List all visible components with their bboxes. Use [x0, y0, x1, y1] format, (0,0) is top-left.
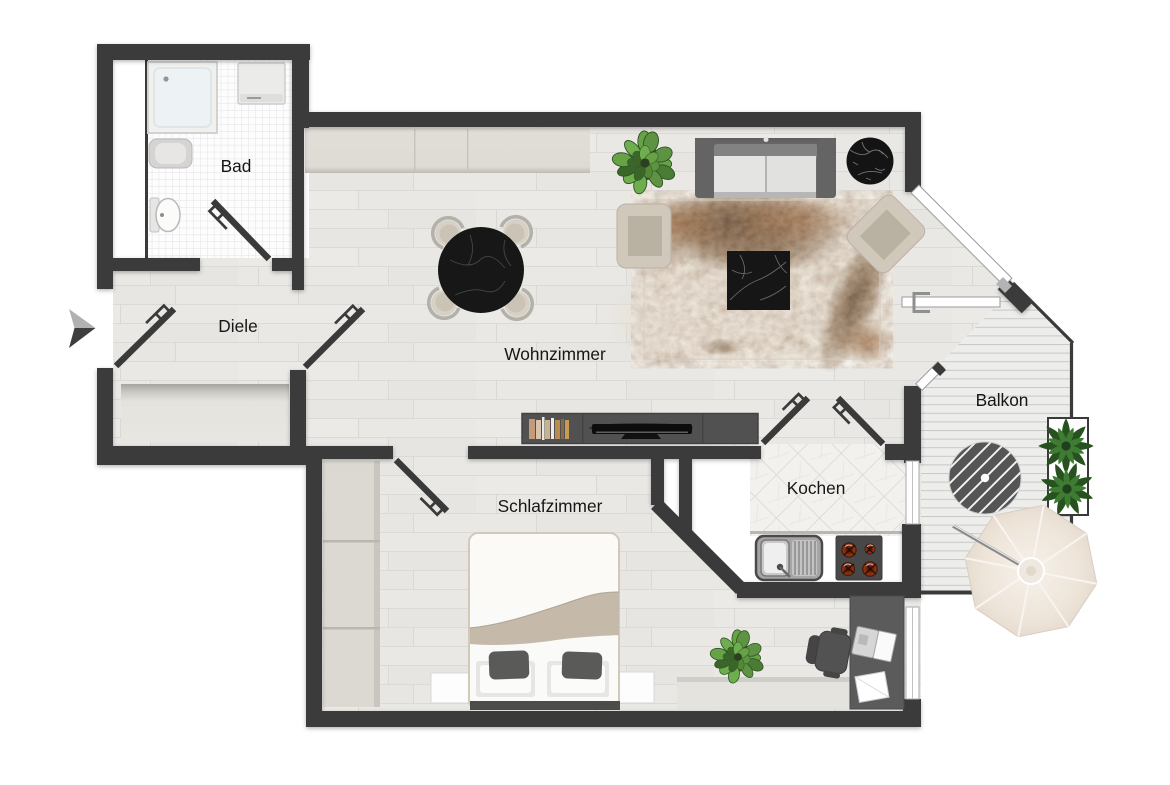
- svg-text:Kochen: Kochen: [787, 478, 846, 498]
- svg-text:Wohnzimmer: Wohnzimmer: [504, 344, 606, 364]
- svg-text:Balkon: Balkon: [976, 390, 1029, 410]
- svg-text:Schlafzimmer: Schlafzimmer: [498, 496, 603, 516]
- svg-text:Diele: Diele: [218, 316, 257, 336]
- svg-text:Bad: Bad: [221, 156, 252, 176]
